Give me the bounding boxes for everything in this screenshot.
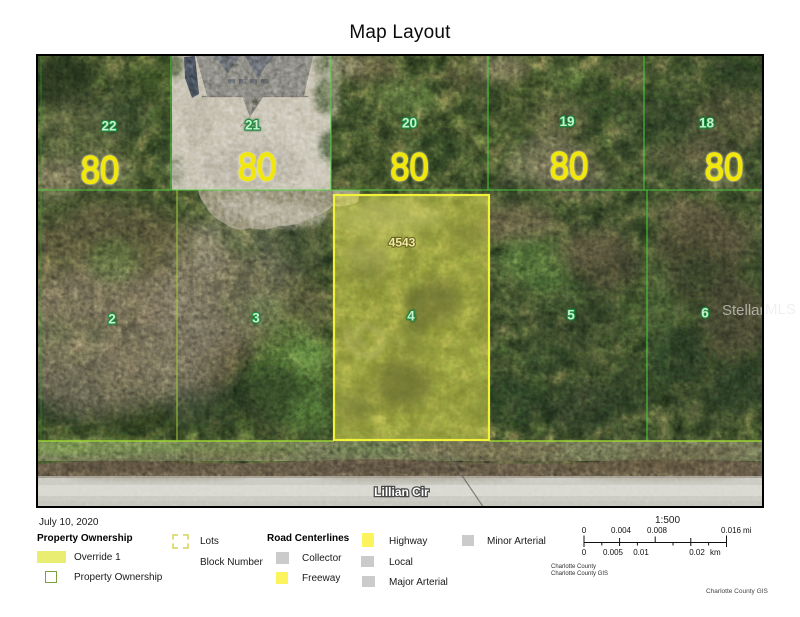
svg-text:Lillian Cir: Lillian Cir xyxy=(374,485,429,499)
svg-text:21: 21 xyxy=(245,118,261,133)
svg-text:4: 4 xyxy=(407,309,415,324)
svg-text:22: 22 xyxy=(101,119,116,134)
svg-text:80: 80 xyxy=(238,146,277,189)
svg-text:3: 3 xyxy=(252,311,260,326)
svg-text:80: 80 xyxy=(81,149,120,192)
svg-text:5: 5 xyxy=(567,308,575,323)
svg-text:19: 19 xyxy=(559,114,574,129)
svg-text:18: 18 xyxy=(699,116,715,131)
svg-text:Stellar MLS: Stellar MLS xyxy=(722,302,762,319)
svg-text:6: 6 xyxy=(701,306,709,321)
svg-text:80: 80 xyxy=(390,146,429,189)
svg-text:20: 20 xyxy=(402,116,417,131)
svg-text:80: 80 xyxy=(705,146,744,189)
svg-text:80: 80 xyxy=(550,145,589,188)
svg-text:4543: 4543 xyxy=(389,236,416,250)
svg-text:2: 2 xyxy=(108,312,116,327)
